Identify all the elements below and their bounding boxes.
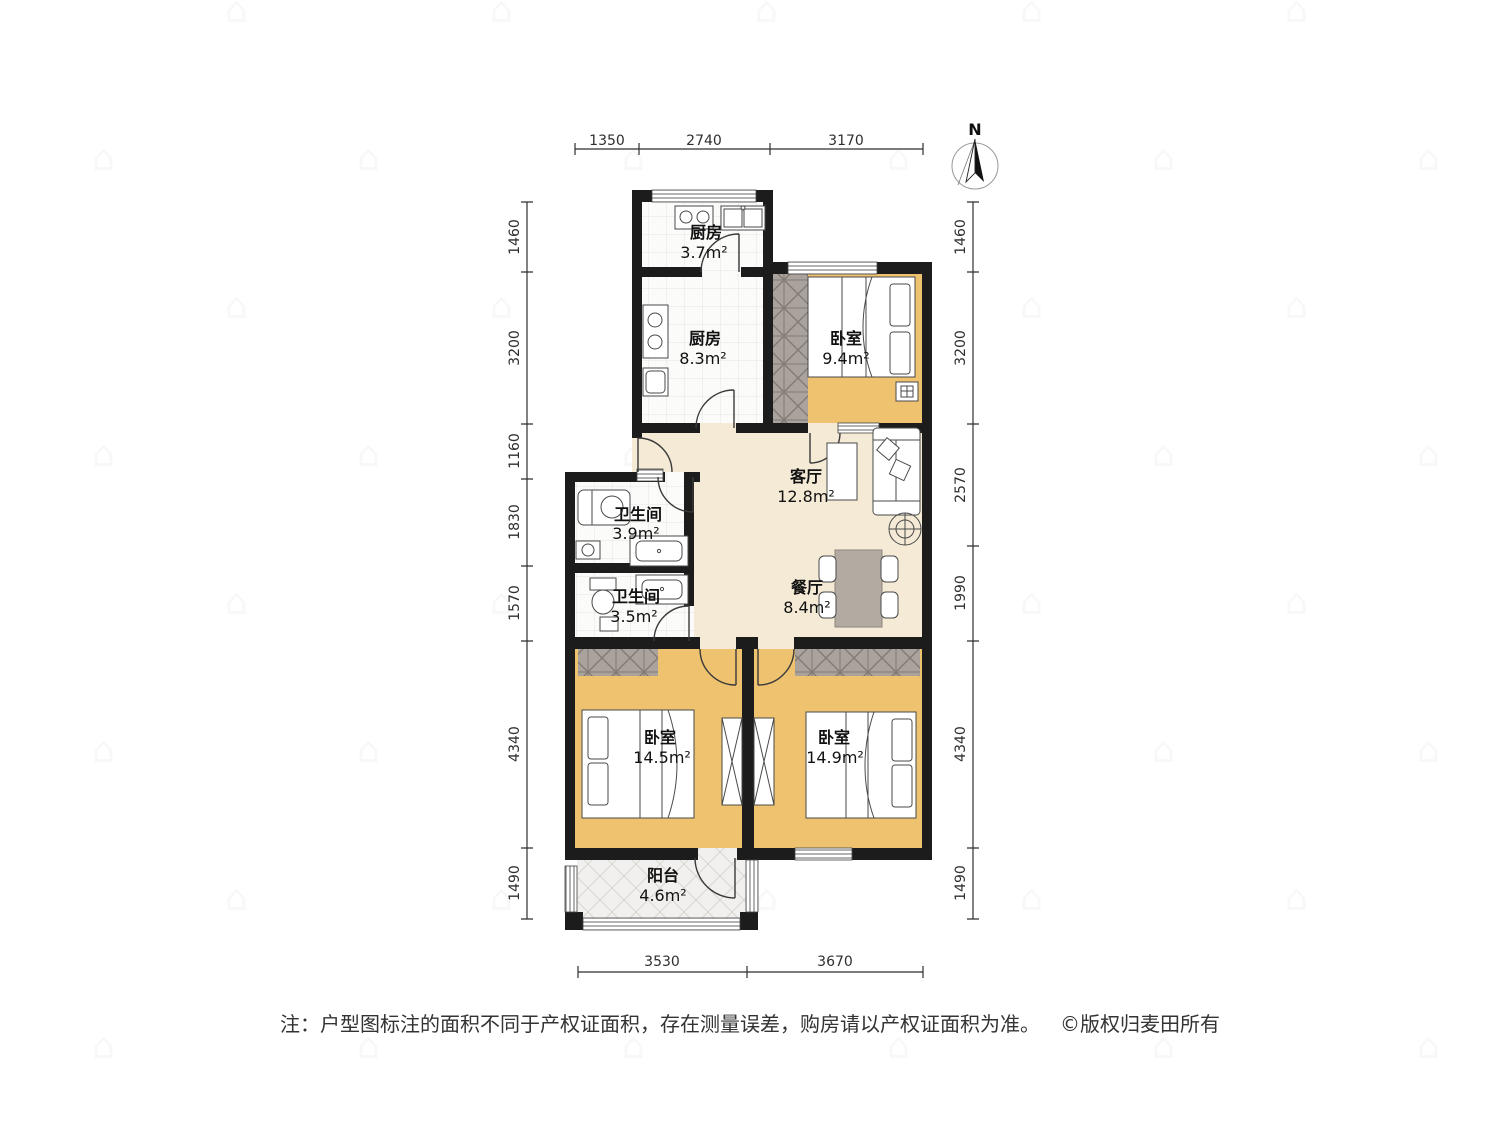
room-area: 3.7m² xyxy=(680,243,727,262)
room-name: 卧室 xyxy=(818,728,850,747)
room-area: 3.9m² xyxy=(612,524,659,543)
north-label: N xyxy=(968,120,981,139)
room-name: 卧室 xyxy=(830,329,862,348)
window-bedroom-se-bottom xyxy=(795,848,852,860)
room-area: 14.5m² xyxy=(633,748,691,767)
disclaimer-text: 注：户型图标注的面积不同于产权证面积，存在测量误差，购房请以产权证面积为准。 xyxy=(280,1012,1040,1036)
north-needle xyxy=(975,139,984,182)
dim-label: 1570 xyxy=(507,585,523,621)
room-area: 9.4m² xyxy=(822,349,869,368)
dim-label: 3200 xyxy=(507,330,523,366)
room-name: 卫生间 xyxy=(612,587,660,606)
sofa-icon xyxy=(873,428,920,515)
dim-label: 3670 xyxy=(817,954,853,970)
fan-table-icon xyxy=(889,513,921,545)
room-name: 客厅 xyxy=(790,467,822,486)
dim-label: 1350 xyxy=(589,133,625,149)
dim-label: 2740 xyxy=(686,133,722,149)
sink-icon xyxy=(721,206,765,230)
stove-icon xyxy=(643,305,668,358)
dim-label: 1830 xyxy=(507,504,523,540)
dim-label: 3170 xyxy=(828,133,864,149)
room-area: 3.5m² xyxy=(610,607,657,626)
window-bedroom-north-top xyxy=(788,262,877,274)
room-name: 厨房 xyxy=(689,329,721,348)
window-balcony-bottom xyxy=(583,918,740,930)
window-balcony-right xyxy=(746,860,758,912)
room-area: 4.6m² xyxy=(639,886,686,905)
basin-icon xyxy=(576,541,600,559)
wardrobe-hatch-sw xyxy=(578,649,658,676)
room-name: 厨房 xyxy=(690,223,722,242)
dim-label: 1990 xyxy=(953,575,969,611)
wardrobe-hatch-se xyxy=(795,649,920,676)
room-area: 12.8m² xyxy=(777,487,835,506)
wardrobe-hatch-north xyxy=(773,274,808,423)
room-name: 餐厅 xyxy=(790,578,823,597)
window-bathroom xyxy=(637,469,663,481)
sink-icon xyxy=(643,368,668,396)
room-name: 阳台 xyxy=(647,866,679,885)
copyright-text: ©版权归麦田所有 xyxy=(1060,1012,1220,1036)
compass: N xyxy=(952,120,998,189)
room-area: 8.4m² xyxy=(783,598,830,617)
window-kitchen-top xyxy=(652,190,756,202)
room-name: 卧室 xyxy=(644,728,676,747)
dim-label: 3530 xyxy=(644,954,680,970)
dim-label: 3200 xyxy=(953,330,969,366)
dim-label: 2570 xyxy=(953,467,969,503)
dim-label: 4340 xyxy=(953,726,969,762)
floor-plan-svg: 厨房 3.7m² 厨房 8.3m² 卧室 9.4m² 客厅 12.8m² 卫生间… xyxy=(0,0,1500,1125)
window-balcony-left xyxy=(565,866,577,912)
dim-label: 4340 xyxy=(507,726,523,762)
dim-label: 1460 xyxy=(507,219,523,255)
dim-label: 1490 xyxy=(507,865,523,901)
dim-label: 1460 xyxy=(953,219,969,255)
room-area: 8.3m² xyxy=(679,349,726,368)
floor-plan-page: ⌂⌂⌂⌂⌂⌂⌂⌂⌂⌂⌂⌂⌂⌂⌂⌂⌂⌂⌂⌂⌂⌂⌂⌂⌂⌂⌂⌂⌂⌂⌂⌂⌂⌂⌂⌂⌂⌂⌂⌂… xyxy=(0,0,1500,1125)
dim-label: 1490 xyxy=(953,865,969,901)
footer-note: 注：户型图标注的面积不同于产权证面积，存在测量误差，购房请以产权证面积为准。©版… xyxy=(0,1008,1500,1037)
room-name: 卫生间 xyxy=(614,505,662,524)
room-area: 14.9m² xyxy=(806,748,864,767)
radiator-icon xyxy=(896,382,918,401)
dim-label: 1160 xyxy=(507,433,523,469)
